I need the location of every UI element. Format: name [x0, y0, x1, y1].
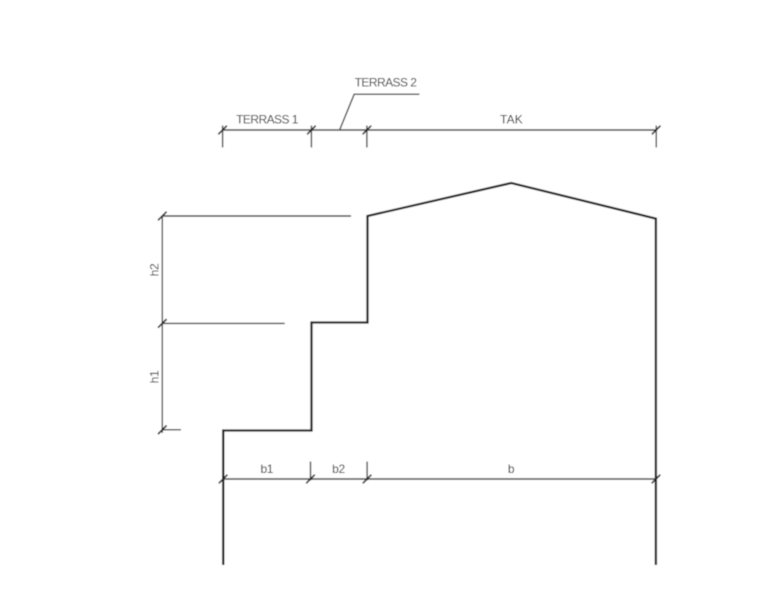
svg-text:h2: h2 — [147, 263, 161, 276]
svg-text:h1: h1 — [147, 370, 161, 383]
svg-text:b: b — [508, 462, 515, 476]
svg-text:TERRASS 1: TERRASS 1 — [236, 113, 299, 127]
svg-text:TAK: TAK — [500, 113, 523, 127]
svg-text:b2: b2 — [332, 462, 345, 476]
svg-text:TERRASS 2: TERRASS 2 — [355, 76, 418, 90]
svg-text:b1: b1 — [260, 462, 273, 476]
